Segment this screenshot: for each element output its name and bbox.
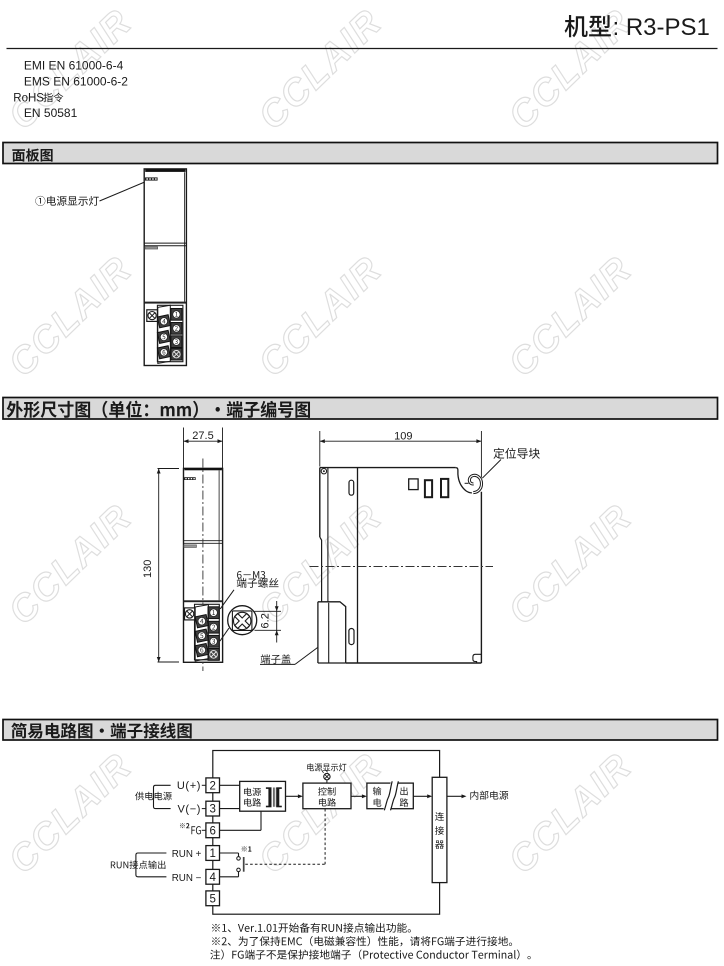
svg-text:CCLAIR: CCLAIR bbox=[500, 495, 640, 632]
svg-text:V(−): V(−) bbox=[178, 803, 202, 815]
svg-text:2: 2 bbox=[209, 780, 215, 792]
svg-text:5: 5 bbox=[209, 893, 215, 905]
svg-text:4: 4 bbox=[209, 872, 216, 884]
svg-text:3: 3 bbox=[209, 804, 215, 816]
svg-text:CCLAIR: CCLAIR bbox=[500, 744, 640, 881]
svg-text:CCLAIR: CCLAIR bbox=[500, 247, 640, 384]
svg-text:CCLAIR: CCLAIR bbox=[250, 247, 390, 384]
svg-text:RoHS: RoHS bbox=[13, 92, 44, 104]
svg-text:CCLAIR: CCLAIR bbox=[0, 495, 140, 632]
svg-text:CCLAIR: CCLAIR bbox=[250, 0, 390, 137]
svg-text:EMS EN 61000-6-2: EMS EN 61000-6-2 bbox=[24, 74, 128, 88]
svg-text:: R3-PS1: : R3-PS1 bbox=[613, 14, 710, 41]
svg-text:1: 1 bbox=[209, 848, 215, 860]
svg-text:109: 109 bbox=[394, 430, 412, 442]
svg-text:EMI EN 61000-6-4: EMI EN 61000-6-4 bbox=[24, 58, 124, 72]
svg-text:6: 6 bbox=[209, 825, 215, 837]
svg-text:27.5: 27.5 bbox=[192, 430, 213, 442]
svg-text:EN 50581: EN 50581 bbox=[24, 106, 78, 120]
svg-text:6.2: 6.2 bbox=[259, 613, 271, 628]
svg-text:U(+): U(+) bbox=[177, 780, 201, 792]
svg-text:RUN +: RUN + bbox=[172, 849, 202, 860]
svg-text:CCLAIR: CCLAIR bbox=[0, 247, 140, 384]
svg-text:RUN −: RUN − bbox=[172, 873, 202, 884]
svg-text:CCLAIR: CCLAIR bbox=[0, 744, 140, 881]
svg-text:130: 130 bbox=[142, 560, 154, 578]
